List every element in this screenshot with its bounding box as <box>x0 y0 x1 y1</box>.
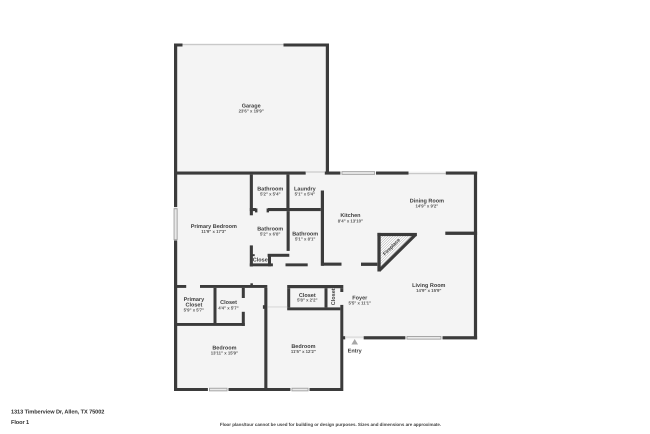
svg-text:5'5" x 11'1": 5'5" x 11'1" <box>348 301 371 306</box>
svg-text:4'4" x 5'7": 4'4" x 5'7" <box>218 306 238 311</box>
svg-text:Closet: Closet <box>253 257 270 263</box>
svg-text:5'2" x 5'4": 5'2" x 5'4" <box>260 192 280 197</box>
svg-text:5'2" x 6'8": 5'2" x 6'8" <box>260 232 280 237</box>
svg-text:14'9" x 15'9": 14'9" x 15'9" <box>416 288 441 293</box>
svg-text:Closet: Closet <box>331 288 337 305</box>
svg-text:5'1" x 5'4": 5'1" x 5'4" <box>295 192 315 197</box>
svg-text:5'8" x 2'2": 5'8" x 2'2" <box>297 298 317 303</box>
svg-text:14'9" x 9'2": 14'9" x 9'2" <box>415 204 438 209</box>
svg-text:8'4" x 13'10": 8'4" x 13'10" <box>338 219 363 224</box>
svg-text:13'11" x 15'9": 13'11" x 15'9" <box>211 351 238 356</box>
svg-text:Entry: Entry <box>348 349 363 355</box>
svg-text:11'9" x 17'3": 11'9" x 17'3" <box>201 229 226 234</box>
svg-text:Floor plans/tour cannot be use: Floor plans/tour cannot be used for buil… <box>220 422 441 427</box>
svg-text:Floor 1: Floor 1 <box>11 419 29 426</box>
svg-text:1313 Timberview Dr, Allen, TX: 1313 Timberview Dr, Allen, TX 75002 <box>11 409 104 416</box>
svg-text:5'1" x 8'1": 5'1" x 8'1" <box>295 237 315 242</box>
svg-text:23'6" x 19'9": 23'6" x 19'9" <box>239 109 264 114</box>
svg-text:11'5" x 12'2": 11'5" x 12'2" <box>291 349 316 354</box>
svg-text:5'9" x 5'7": 5'9" x 5'7" <box>184 308 204 313</box>
